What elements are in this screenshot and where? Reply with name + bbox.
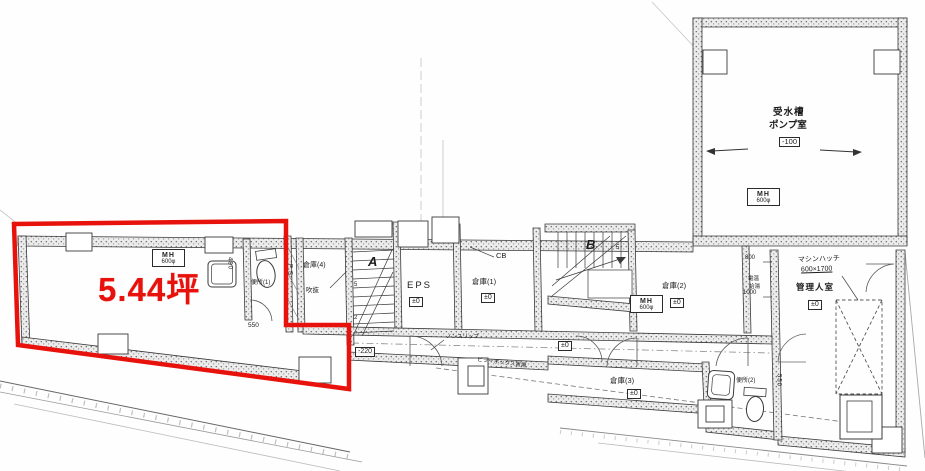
eps-level: ±0 bbox=[409, 297, 423, 307]
storage1-label: 倉庫(1) bbox=[472, 278, 496, 286]
labels-layer: 5.44坪 受水槽 ポンプ室 -100 便所(1) 480 550 P.S 倉庫… bbox=[0, 0, 925, 471]
dim-550: 550 bbox=[248, 322, 259, 329]
pipe-space-label: P.S bbox=[286, 264, 293, 276]
stair-a-step2: 2 bbox=[354, 315, 357, 322]
dim-480: 480 bbox=[226, 257, 233, 270]
dim-1000: 1000 bbox=[743, 290, 756, 297]
stair-b-label: B bbox=[586, 238, 595, 252]
storage4-label: 倉庫(4) bbox=[303, 262, 326, 270]
machine-hatch-note: マシンハッチ bbox=[798, 255, 840, 264]
pump-room-label-1: 受水槽 bbox=[773, 108, 805, 118]
water-heater-note: 電温 bbox=[748, 276, 759, 282]
stair-b-step5: 5 bbox=[616, 245, 619, 252]
eps-label: EPS bbox=[407, 281, 432, 291]
manager-room-label: 管理人室 bbox=[796, 283, 834, 292]
machine-hatch-size: 600×1700 bbox=[801, 265, 833, 274]
level-minus220: -220 bbox=[355, 347, 375, 357]
floor-plan-page: MH 600φ MH 600φ MH 600φ 5.44坪 受水槽 ポンプ室 -… bbox=[0, 0, 925, 471]
cb-note: CB bbox=[496, 252, 506, 260]
toilet1-label: 便所(1) bbox=[251, 280, 270, 287]
toilet2-label: 便所(2) bbox=[736, 378, 755, 385]
void-label: 吹抜 bbox=[306, 287, 319, 294]
corridor-level: ±0 bbox=[558, 341, 572, 351]
storage1-level: ±0 bbox=[481, 293, 495, 303]
pump-room-level: -100 bbox=[779, 137, 800, 147]
pillar-box-note: ピラーボックス置場 bbox=[477, 357, 527, 369]
area-highlight-label: 5.44坪 bbox=[98, 272, 200, 308]
dim-550-manager: 550 bbox=[775, 374, 782, 387]
stair-a-step5: 5 bbox=[354, 282, 357, 289]
nonslip-note: ノンスリップ bbox=[446, 334, 479, 340]
storage2-label: 倉庫(2) bbox=[662, 282, 686, 290]
storage3-level: ±0 bbox=[627, 389, 641, 399]
pump-room-label-2: ポンプ室 bbox=[769, 121, 807, 131]
stair-a-label: A bbox=[368, 255, 377, 269]
storage2-level: ±0 bbox=[670, 298, 684, 308]
storage3-label: 倉庫(3) bbox=[610, 377, 634, 385]
dim-800: 800 bbox=[745, 255, 755, 262]
manager-level: ±0 bbox=[808, 300, 822, 310]
